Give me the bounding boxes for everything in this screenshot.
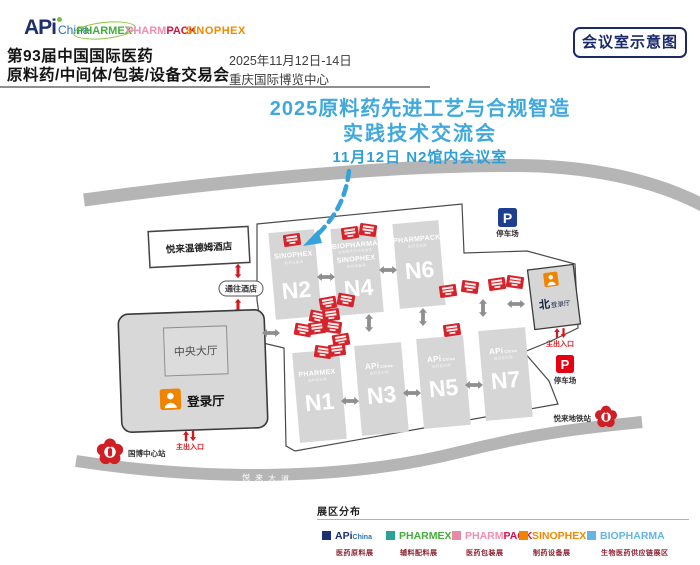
- entrance-marker-icon: [341, 226, 360, 240]
- legend-logo-text: BIOPHARMA: [600, 530, 665, 542]
- north-registration-building: 北登录厅: [528, 264, 581, 329]
- hall-n7-number: N7: [490, 366, 522, 394]
- entrance-marker-icon: [308, 321, 327, 335]
- legend-sub-label: 辅料配料展: [400, 548, 452, 558]
- legend-color-swatch: [519, 531, 528, 540]
- hotel-path-arrow-icon: [235, 264, 241, 278]
- entrance-marker-icon: [461, 280, 480, 294]
- legend-logo-text: SINOPHEX: [532, 530, 586, 542]
- hall-n3: APiChina 医药原料展 N3: [354, 342, 409, 436]
- hall-n5-logo: APi: [427, 354, 442, 364]
- meeting-room-map-badge: 会议室示意图: [573, 27, 687, 58]
- entrance-marker-icon: [319, 296, 338, 311]
- legend-item-pharmex: PHARMEX 辅料配料展: [386, 527, 452, 558]
- announcement-line3: 11月12日 N2馆内会议室: [150, 146, 690, 167]
- legend-logo-text: China: [353, 534, 372, 541]
- entrance-marker-icon: [283, 233, 302, 247]
- registration-icon: [160, 388, 182, 410]
- hall-n1: PHARMEX 辅料配料展 N1: [292, 349, 347, 443]
- hotel-building: 悦来温德姆酒店: [148, 226, 250, 267]
- legend-color-swatch: [587, 531, 596, 540]
- pharmex-logo: PHARMEX: [77, 25, 132, 37]
- parking-top-label: 停车场: [496, 228, 519, 238]
- parking-symbol: P: [503, 210, 512, 226]
- registration-icon: [543, 271, 559, 287]
- entrance-marker-icon: [488, 277, 507, 291]
- sinophex-logo: SINOPHEX: [185, 25, 246, 37]
- main-exit-left: 主出入口: [176, 431, 204, 451]
- hall-n6: PHARMPACK 医药包装展 N6: [392, 220, 447, 309]
- legend-sub-label: 生物医药供应链展区: [601, 548, 669, 558]
- legend-item-sinophex: SINOPHEX 制药设备展: [519, 527, 586, 558]
- hall-n3-number: N3: [366, 381, 398, 409]
- to-hotel-label: 通往酒店: [225, 284, 257, 294]
- entrance-marker-icon: [506, 275, 525, 289]
- sinophex-logo-text: SINOPHEX: [185, 25, 246, 37]
- registration-hall-label: 登录厅: [186, 393, 225, 409]
- main-exit-right: 主出入口: [546, 328, 574, 348]
- north-reg-prefix: 北: [538, 297, 551, 312]
- metro-left-label: 国博中心站: [128, 448, 166, 458]
- hall-n7-logo: APi: [489, 346, 504, 356]
- parking-right: P 停车场: [554, 355, 577, 385]
- entrance-marker-icon: [328, 343, 347, 357]
- central-hall-label: 中央大厅: [174, 343, 218, 359]
- pharmpack-logo-text-a: PHARM: [126, 25, 166, 37]
- main-exit-left-label: 主出入口: [176, 442, 204, 451]
- entrance-marker-icon: [443, 323, 462, 337]
- legend-divider: [317, 519, 689, 520]
- announcement-line2: 实践技术交流会: [150, 117, 690, 146]
- exit-arrow-icon: [183, 431, 189, 442]
- legend-sub-label: 制药设备展: [533, 548, 586, 558]
- parking-symbol: P: [561, 357, 570, 372]
- legend-logo-text: PHARMEX: [399, 530, 452, 542]
- exit-arrow-icon: [554, 328, 560, 338]
- hall-n3-logo: APi: [365, 361, 380, 371]
- to-hotel-pill: 通往酒店: [219, 281, 263, 296]
- legend-logo-text: APi: [335, 530, 353, 542]
- expo-title-line2: 原料药/中间体/包装/设备交易会: [7, 63, 229, 85]
- legend-item-biopharma: BIOPHARMA 生物医药供应链展区: [587, 527, 669, 558]
- metro-right-label: 悦来地铁站: [554, 413, 592, 423]
- hall-n6-number: N6: [404, 256, 436, 284]
- road-bottom-label: 悦来大道: [242, 472, 294, 484]
- legend-color-swatch: [452, 531, 461, 540]
- legend-item-api: APiChina 医药原料展: [322, 527, 374, 558]
- main-exit-right-label: 主出入口: [546, 339, 574, 348]
- legend-color-swatch: [322, 531, 331, 540]
- hall-n2-number: N2: [281, 276, 313, 304]
- entrance-marker-icon: [439, 284, 458, 298]
- hall-n5: APiChina 医药原料展 N5: [416, 335, 471, 429]
- road-top: [84, 166, 700, 208]
- legend-logo-text: PHARM: [465, 530, 504, 542]
- legend-title: 展区分布: [317, 503, 361, 518]
- legend-sub-label: 医药原料展: [336, 548, 374, 558]
- legend-color-swatch: [386, 531, 395, 540]
- hall-n5-number: N5: [428, 374, 460, 402]
- entrance-marker-icon: [359, 223, 378, 237]
- entrance-marker-icon: [322, 308, 341, 322]
- entrance-marker-icon: [324, 320, 343, 334]
- header-separator: [0, 86, 430, 88]
- exit-arrow-icon: [190, 431, 196, 442]
- api-logo-green-dot-icon: [57, 17, 62, 22]
- metro-logo-icon: [97, 439, 123, 465]
- parking-right-label: 停车场: [554, 375, 577, 385]
- main-building: 中央大厅 登录厅: [118, 309, 268, 432]
- expo-date: 2025年11月12日-14日: [229, 50, 352, 69]
- api-logo-text: APi: [24, 16, 56, 39]
- hall-n7: APiChina 医药原料展 N7: [478, 327, 533, 421]
- metro-logo-icon: [595, 406, 617, 428]
- hall-n1-number: N1: [304, 388, 336, 416]
- parking-top: P 停车场: [496, 208, 519, 238]
